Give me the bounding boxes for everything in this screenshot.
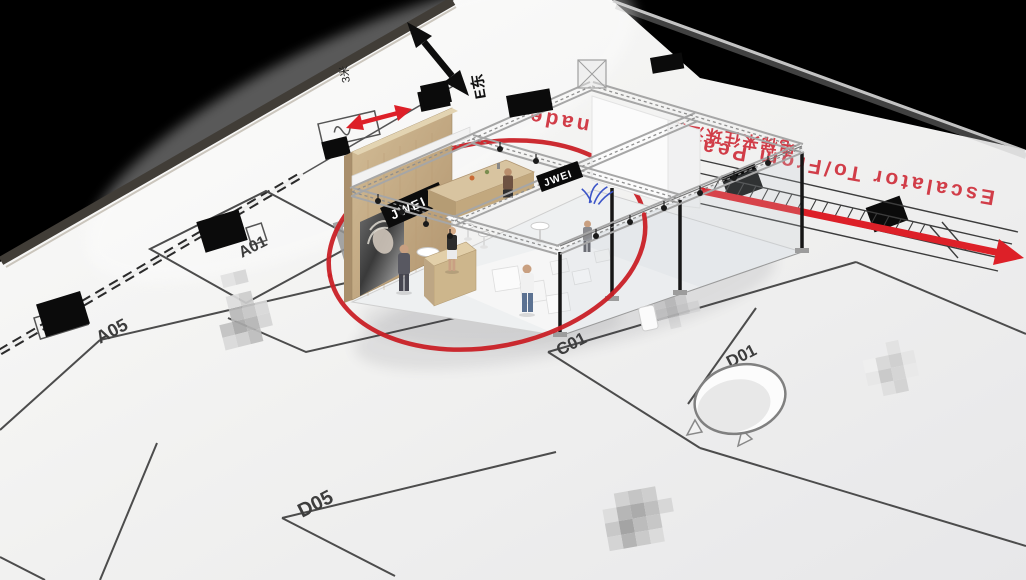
exhibition-floorplan-scene: A01 A05 C01 D01 D05 P	[0, 0, 1026, 580]
floorplan-canvas: A01 A05 C01 D01 D05 P	[0, 0, 1026, 580]
